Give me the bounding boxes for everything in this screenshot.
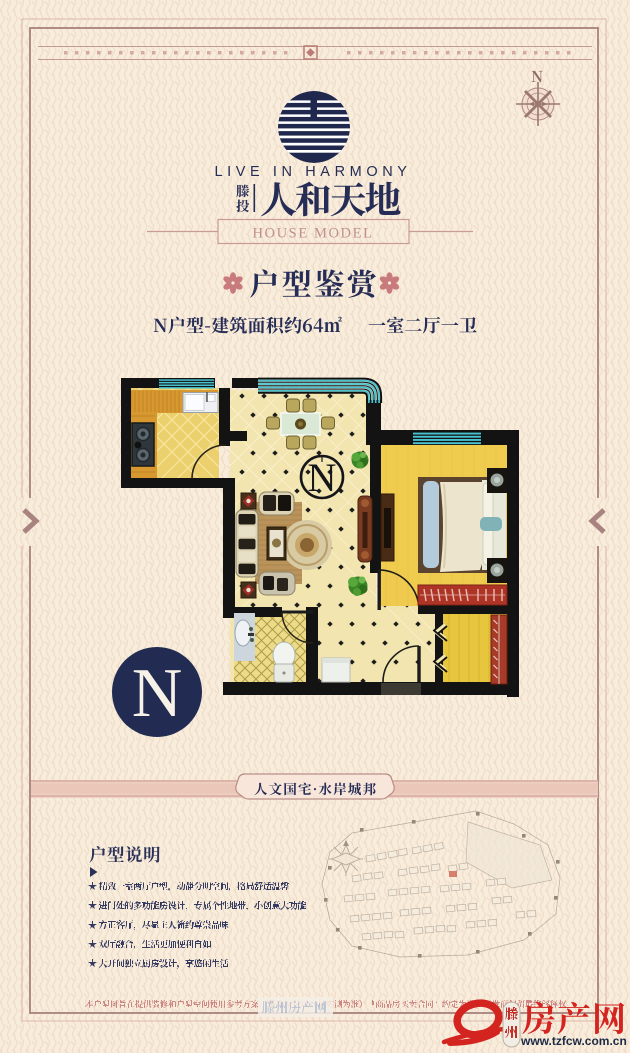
svg-text:HOUSE MODEL: HOUSE MODEL bbox=[252, 226, 373, 242]
svg-text:www.tzfcw.com.cn: www.tzfcw.com.cn bbox=[520, 1034, 627, 1048]
svg-text:N: N bbox=[132, 655, 183, 732]
svg-text:LIVE IN HARMONY: LIVE IN HARMONY bbox=[214, 164, 411, 180]
